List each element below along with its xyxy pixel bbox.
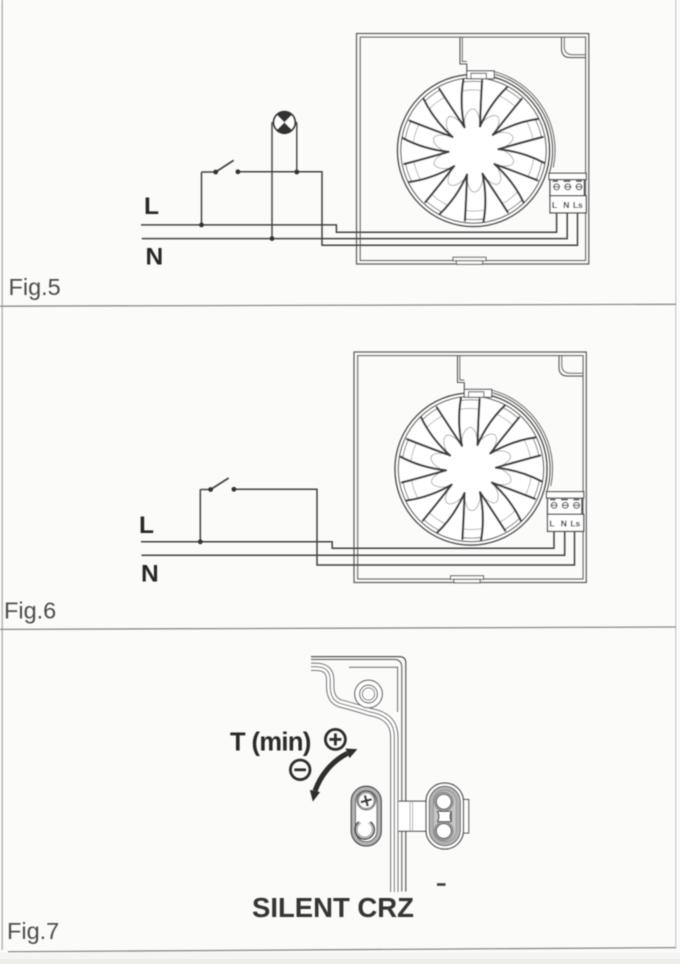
svg-text:Fig.7: Fig.7 [7,918,59,944]
svg-text:SILENT CRZ: SILENT CRZ [252,892,414,923]
svg-text:T (min): T (min) [230,729,311,757]
svg-text:N: N [146,244,164,271]
svg-text:Fig.5: Fig.5 [9,274,61,300]
svg-text:N: N [141,560,159,587]
svg-text:L: L [139,512,154,539]
svg-text:L: L [144,193,159,220]
svg-text:Fig.6: Fig.6 [4,597,56,623]
